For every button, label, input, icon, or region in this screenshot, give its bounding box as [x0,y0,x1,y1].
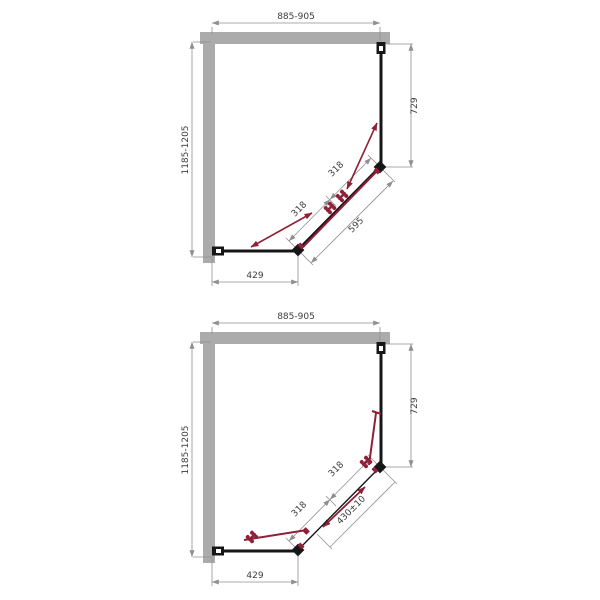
technical-drawing-canvas: 885-905 1185-1205 729 429 318 318 595 [0,0,600,600]
wall-profile-top-right-inner [379,346,383,351]
dim-depth-label: 1185-1205 [181,125,191,174]
wall-left [203,32,215,263]
dim-diagonal-extension-lines [300,169,395,265]
wall-profile-bottom-left-inner [216,549,221,553]
wall-top [200,32,390,44]
dim-door-b-label: 318 [327,160,346,179]
sliding-door-pair-closed [303,170,378,247]
dim-side-panel-label: 729 [410,97,420,114]
wall-profile-top-right-inner [379,46,383,51]
wall-left [203,332,215,563]
diagram-doors-open: 885-905 1185-1205 729 429 318 318 430±10 [0,300,600,600]
dim-diagonal-label: 595 [347,216,366,235]
slide-direction-arrow-right [347,123,377,189]
dim-side-panel-label: 729 [410,397,420,414]
wall-top [200,332,390,344]
door-handle-left [245,530,259,544]
dim-side-panel-extension-lines [384,344,413,467]
dim-depth-label: 1185-1205 [181,425,191,474]
dim-door-a-label: 318 [290,500,309,519]
dim-front-panel-label: 429 [246,571,263,581]
dim-front-panel-extension-lines [212,554,298,586]
door-roller-left-door [302,527,310,535]
diagram-doors-closed: 885-905 1185-1205 729 429 318 318 595 [0,0,600,300]
dim-front-panel-label: 429 [246,271,263,281]
slide-direction-arrow-left [251,213,312,247]
dim-width-label: 885-905 [277,312,315,322]
dim-front-panel-extension-lines [212,254,298,286]
dim-door-b-label: 318 [327,460,346,479]
dim-width-label: 885-905 [277,12,315,22]
wall-profile-bottom-left-inner [216,249,221,253]
dim-side-panel-extension-lines [384,44,413,167]
open-door-right [369,413,376,465]
